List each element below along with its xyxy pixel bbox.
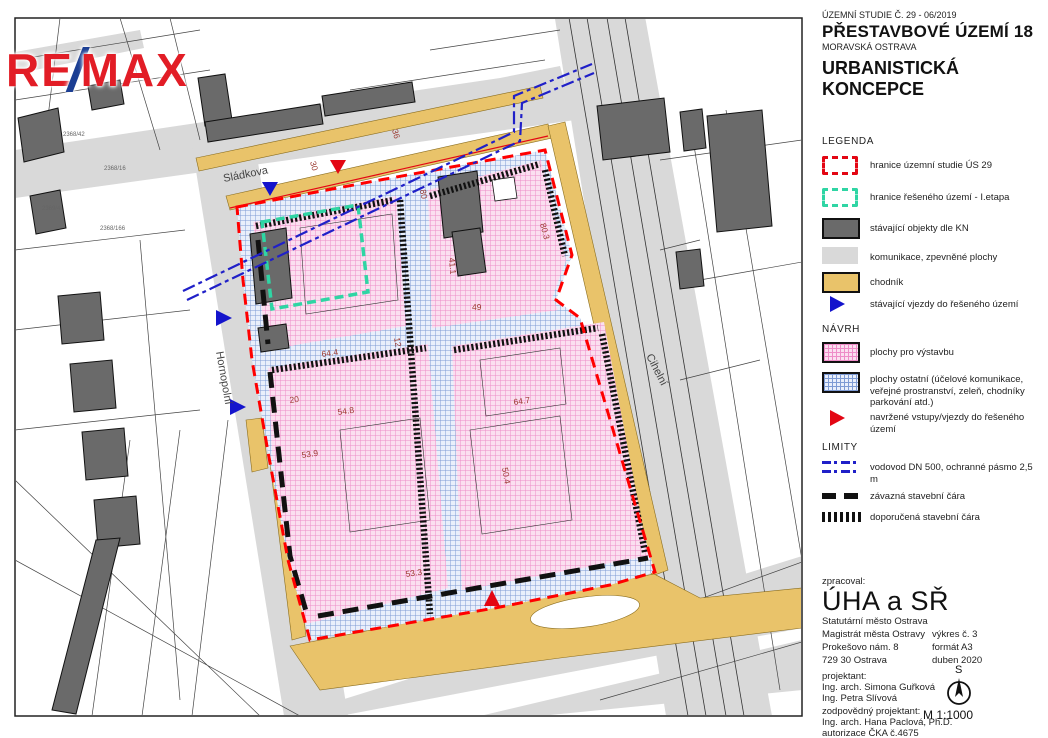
org-line: Statutární město Ostrava [822,616,928,627]
legend-heading: LEGENDA [822,136,874,147]
urban-plan-map: Sládkova Hornopolní Cihelní 30 36 80 80.… [0,0,815,738]
existing-building-swatch [822,218,860,239]
legend-item-label: doporučená stavební čára [870,512,1038,524]
study-reference: ÚZEMNÍ STUDIE Č. 29 - 06/2019 [822,10,957,20]
small-parcel-outline [492,177,517,201]
dimension-label: 80 [418,189,430,200]
parcel-label: 2368/16 [104,166,126,172]
concept-title-line2: KONCEPCE [822,79,924,100]
legend-item-label: plochy pro výstavbu [870,347,1038,359]
org-line: Magistrát města Ostravy [822,629,925,640]
legend-item-label: chodník [870,277,1038,289]
legend-item-label: plochy ostatní (účelové komunikace, veře… [870,374,1038,409]
dimension-label: 20 [289,394,300,405]
road-surface-swatch [822,247,858,264]
limity-heading: LIMITY [822,442,858,453]
scale-label: M 1:1000 [923,708,973,722]
other-area-swatch [822,372,860,393]
dimension-label: 12 [392,337,404,348]
projektant-name: Ing. Petra Slívová [822,693,897,704]
dimension-label: 41.1 [447,257,458,275]
legend-item-label: stávající vjezdy do řešeného území [870,299,1038,311]
org-name: ÚHA a SŘ [822,586,949,617]
build-area-swatch [822,342,860,363]
remax-logo: RE/MAX [6,42,189,99]
etapa-boundary-swatch [822,188,858,207]
dimension-label: 49 [472,302,482,312]
remax-logo-max: MAX [81,44,189,96]
projektant-name: Ing. arch. Simona Guřková [822,682,935,693]
projektant-label: projektant: [822,671,866,682]
legend-item-label: stávající objekty dle KN [870,223,1038,235]
parcel-label: 2368/166 [100,226,126,232]
concept-title-line1: URBANISTICKÁ [822,58,959,79]
compass-icon [943,676,975,708]
binding-line-swatch [822,493,860,499]
page-subtitle: MORAVSKÁ OSTRAVA [822,42,917,52]
legend-item-label: navržené vstupy/vjezdy do řešeného území [870,412,1038,435]
responsible-name: autorizace ČKA č.4675 [822,728,919,738]
legend-item-label: hranice územní studie ÚS 29 [870,160,1038,172]
sheet-meta: formát A3 [932,642,973,653]
sidewalk-swatch [822,272,860,293]
vodovod-swatch [822,460,858,474]
drawing-sheet: Sládkova Hornopolní Cihelní 30 36 80 80.… [0,0,1048,738]
legend-item-label: vodovod DN 500, ochranné pásmo 2,5 m [870,462,1038,485]
legend-item-label: komunikace, zpevněné plochy [870,252,1038,264]
study-boundary-swatch [822,156,858,175]
legend-item-label: závazná stavební čára [870,491,1038,503]
remax-logo-re: RE [6,44,74,96]
sheet-meta: výkres č. 3 [932,629,977,640]
legend-item-label: hranice řešeného území - I.etapa [870,192,1038,204]
org-line: 729 30 Ostrava [822,655,887,666]
parcel-label: 2369/4 [42,206,61,212]
legend-panel: ÚZEMNÍ STUDIE Č. 29 - 06/2019 PŘESTAVBOV… [815,0,1048,738]
recommended-line-swatch [822,512,862,522]
proposed-entry-icon [830,410,845,426]
responsible-label: zodpovědný projektant: [822,706,920,717]
navrh-heading: NÁVRH [822,324,860,335]
parcel-label: 2368/42 [63,132,85,138]
page-title: PŘESTAVBOVÉ ÚZEMÍ 18 [822,22,1033,42]
existing-entry-icon [830,296,845,312]
org-line: Prokešovo nám. 8 [822,642,899,653]
compass-north-label: S [955,664,962,676]
